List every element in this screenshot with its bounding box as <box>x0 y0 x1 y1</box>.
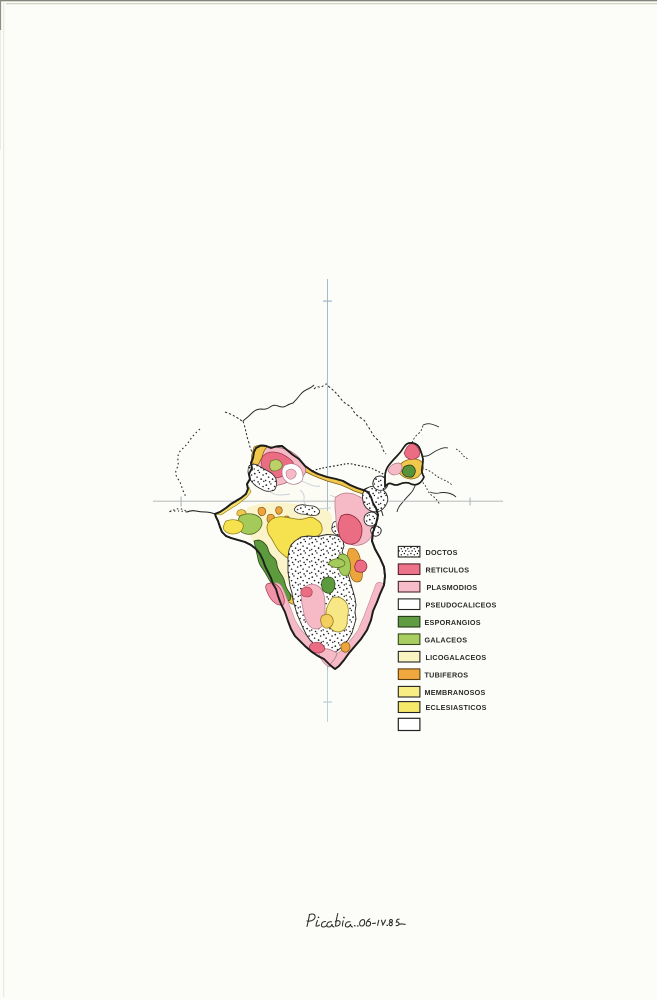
svg-text:LICOGALACEOS: LICOGALACEOS <box>426 653 487 662</box>
svg-text:GALACEOS: GALACEOS <box>425 635 468 644</box>
svg-text:PSEUDOCALICEOS: PSEUDOCALICEOS <box>426 600 497 609</box>
svg-text:ECLESIASTICOS: ECLESIASTICOS <box>426 703 487 712</box>
svg-text:RETICULOS: RETICULOS <box>426 565 470 574</box>
svg-text:DOCTOS: DOCTOS <box>426 548 458 557</box>
svg-text:PLASMODIOS: PLASMODIOS <box>427 583 478 592</box>
svg-text:MEMBRANOSOS: MEMBRANOSOS <box>425 688 486 697</box>
svg-text:ESPORANGIOS: ESPORANGIOS <box>425 618 481 627</box>
svg-text:TUBIFEROS: TUBIFEROS <box>425 670 469 679</box>
